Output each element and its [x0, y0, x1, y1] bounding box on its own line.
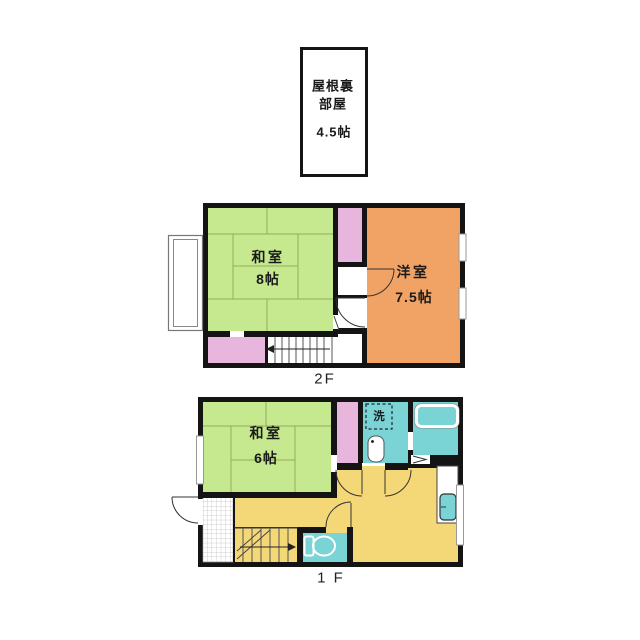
washitsu-1f-size: 6帖 [254, 448, 278, 468]
room-youshitsu-2f [367, 208, 460, 363]
window-2f-right-bottom [459, 288, 466, 319]
window-1f-left [197, 436, 204, 484]
laundry-label: 洗 [373, 408, 385, 424]
floor2-plan [169, 203, 467, 368]
washitsu-1f-name: 和室 [250, 423, 283, 443]
washbasin-icon [368, 436, 384, 462]
washitsu-1f-entry-gap [331, 455, 337, 472]
entrance-gap [198, 499, 203, 525]
floor-plan-page: 屋根裏 部屋 4.5帖 和室 8帖 洋室 7.5帖 2F 和室 6帖 洗 1 F [0, 0, 640, 640]
attic-name-line1: 屋根裏 [312, 76, 354, 95]
youshitsu-size: 7.5帖 [395, 287, 432, 307]
closet-2f-bottom [208, 337, 265, 363]
bathtub-icon [415, 404, 459, 428]
closet-1f [337, 402, 358, 463]
entrance-tile [203, 497, 233, 562]
washitsu-2f-size: 8帖 [256, 269, 280, 289]
closet-2f-gap [230, 331, 244, 337]
door-entrance [172, 497, 198, 523]
floor2-label: 2F [314, 371, 336, 388]
youshitsu-name: 洋室 [397, 262, 430, 282]
window-2f-right-top [459, 234, 466, 261]
kitchen-counter [437, 466, 458, 523]
washitsu-2f-name: 和室 [252, 247, 285, 267]
toilet-room [303, 533, 347, 562]
attic-size: 4.5帖 [316, 122, 351, 141]
closet-2f-top [338, 208, 362, 262]
attic-name-line2: 部屋 [319, 94, 347, 113]
floor1-label: 1 F [317, 570, 345, 587]
window-1f-right [457, 485, 464, 545]
balcony [169, 236, 203, 331]
room-washitsu-1f [203, 402, 331, 492]
floor1-plan [172, 400, 464, 565]
washitsu-2f-entry-gap [333, 315, 338, 329]
